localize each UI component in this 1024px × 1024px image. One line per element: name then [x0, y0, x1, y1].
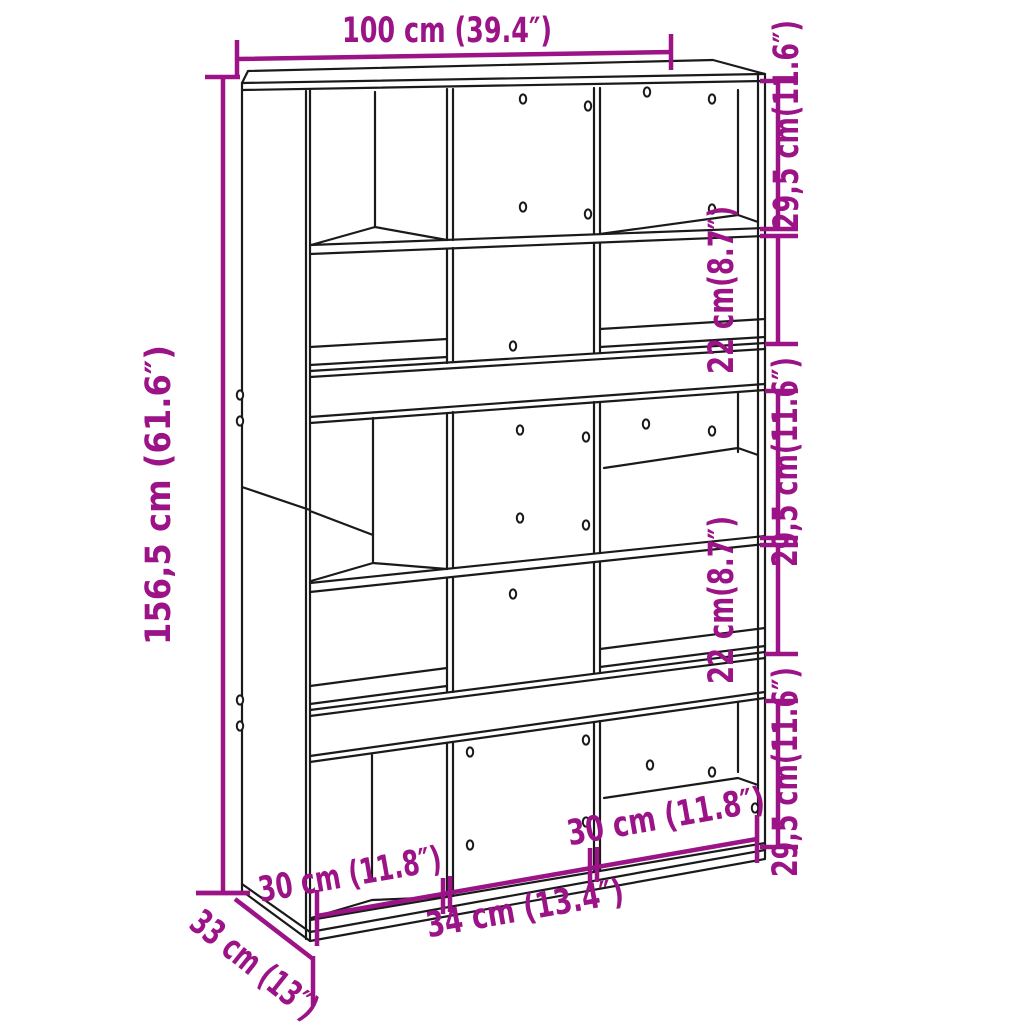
- section-3-label: 29,5 cm(11.6″): [766, 357, 806, 567]
- depth-dimension-label: 33 cm (13″): [182, 902, 326, 1024]
- section-height-dimensions: 29,5 cm(11.6″) 22 cm(8.7″) 29,5 cm(11.6″…: [702, 20, 807, 877]
- cabinet-shelves: [310, 228, 765, 762]
- section-1-label: 29,5 cm(11.6″): [767, 20, 807, 230]
- cabinet-right-panel: [758, 74, 765, 858]
- height-dimension-label: 156,5 cm (61.6″): [139, 345, 179, 645]
- width-dimension-label: 100 cm (39.4″): [342, 11, 552, 51]
- diagram-canvas: 100 cm (39.4″) 156,5 cm (61.6″) 29,5 cm(…: [0, 0, 1024, 1024]
- section-4-label: 22 cm(8.7″): [702, 516, 742, 684]
- cabinet-top-panel: [242, 60, 765, 90]
- section-2-label: 22 cm(8.7″): [702, 206, 742, 374]
- dimension-diagram: 100 cm (39.4″) 156,5 cm (61.6″) 29,5 cm(…: [0, 0, 1024, 1024]
- height-dimension: 156,5 cm (61.6″): [139, 77, 250, 893]
- depth-dimension: 33 cm (13″): [182, 893, 326, 1024]
- cabinet-left-panel: [242, 83, 373, 940]
- section-5-label: 29,5 cm(11.6″): [766, 667, 806, 877]
